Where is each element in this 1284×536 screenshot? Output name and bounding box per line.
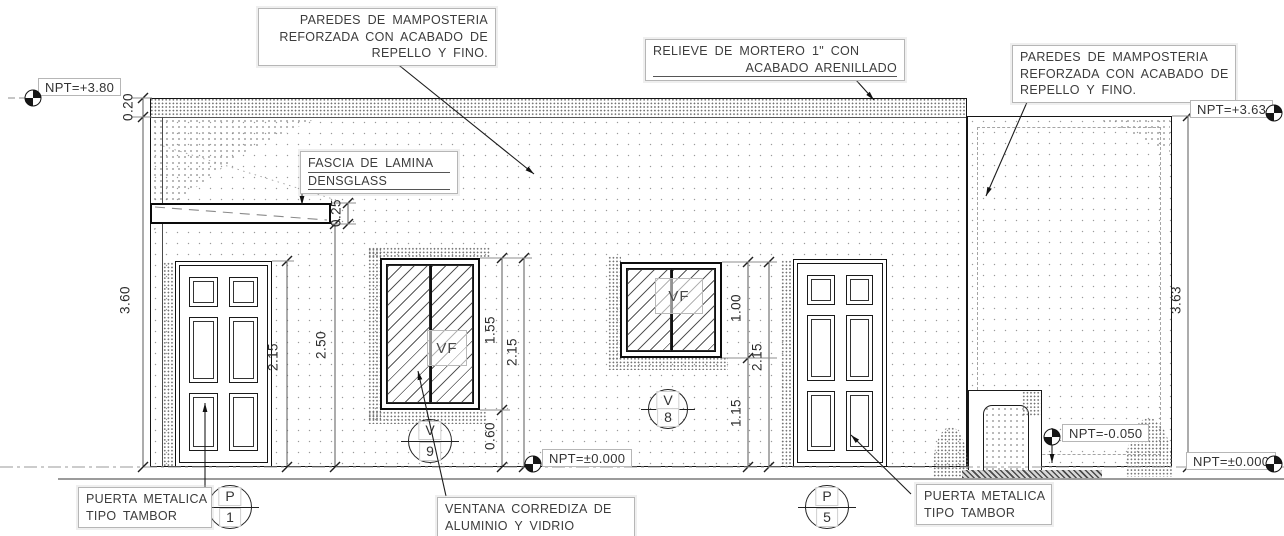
marker-p1: P 1 — [208, 485, 252, 529]
note-mortar: RELIEVE DE MORTERO 1" CON ACABADO ARENIL… — [645, 39, 905, 81]
level-npt-zero-center: NPT=±0.000 — [542, 449, 632, 467]
window-v8-vf-tag: VF — [655, 278, 703, 314]
level-symbol-icon — [525, 456, 542, 473]
marker-letter: P — [815, 487, 838, 506]
marker-v8: V 8 — [648, 389, 688, 429]
marker-letter: P — [218, 487, 241, 506]
note-line: PAREDES DE MAMPOSTERIA — [266, 12, 488, 29]
dim-window-v9-head: 2.15 — [505, 338, 520, 366]
door-panel — [229, 317, 258, 383]
note-masonry-right: PAREDES DE MAMPOSTERIA REFORZADA CON ACA… — [1012, 45, 1236, 103]
door-panel — [846, 391, 874, 451]
level-npt-zero-right: NPT=±0.000 — [1186, 452, 1276, 470]
note-line: FASCIA DE LAMINA — [308, 155, 450, 173]
note-line: REPELLO Y FINO. — [1020, 82, 1228, 99]
dim-parapet-band: 0.20 — [121, 93, 136, 121]
wall-inner-edge-line — [162, 117, 163, 467]
note-line: PUERTA METALICA — [924, 488, 1044, 505]
dim-right-wall-height: 3.63 — [1169, 286, 1184, 314]
dim-window-v9-height: 1.55 — [483, 316, 498, 344]
note-line: DENSGLASS — [308, 173, 450, 191]
niche-base-strip — [962, 470, 1102, 478]
note-masonry-left: PAREDES DE MAMPOSTERIA REFORZADA CON ACA… — [258, 8, 496, 66]
dim-canopy-to-floor: 2.50 — [314, 331, 329, 359]
note-window-sliding: VENTANA CORREDIZA DE ALUMINIO Y VIDRIO — [437, 497, 635, 536]
dim-window-v9-sill: 0.60 — [483, 422, 498, 450]
niche-corner-stipple — [1022, 391, 1041, 417]
note-line: TIPO TAMBOR — [924, 505, 1044, 522]
door-left — [175, 261, 272, 467]
note-line: RELIEVE DE MORTERO 1" CON — [653, 43, 897, 60]
door-panel — [807, 391, 835, 451]
door-panel — [229, 277, 258, 307]
marker-number: 8 — [657, 408, 679, 427]
window-v9-vf-tag: VF — [427, 330, 467, 366]
dim-left-door-height: 2.15 — [266, 343, 281, 371]
dim-window-v8-head: 2.15 — [750, 343, 765, 371]
dim-fascia-thickness: 0.25 — [329, 199, 344, 227]
note-fascia: FASCIA DE LAMINA DENSGLASS — [300, 151, 458, 194]
level-npt-380: NPT=+3.80 — [38, 78, 121, 96]
marker-number: 9 — [419, 442, 441, 461]
note-door-right: PUERTA METALICA TIPO TAMBOR — [916, 484, 1052, 525]
door-right — [793, 259, 887, 467]
level-symbol-icon — [25, 90, 42, 107]
window-pane — [387, 265, 430, 403]
level-npt-minus-050: NPT=-0.050 — [1062, 424, 1149, 442]
door-panel — [189, 393, 218, 451]
marker-p5: P 5 — [805, 485, 849, 529]
door-panel — [807, 315, 835, 381]
door-panel — [846, 275, 874, 305]
note-line: REPELLO Y FINO. — [266, 45, 488, 62]
canopy-slab — [150, 203, 331, 224]
door-panel — [846, 315, 874, 381]
note-line: PUERTA METALICA — [86, 491, 204, 508]
door-right-leaf — [797, 263, 883, 463]
level-symbol-icon — [1266, 456, 1283, 473]
door-panel — [807, 275, 835, 305]
note-line: REFORZADA CON ACABADO DE — [1020, 66, 1228, 83]
note-line: TIPO TAMBOR — [86, 508, 204, 525]
marker-number: 5 — [816, 508, 838, 527]
note-line: ALUMINIO Y VIDRIO — [445, 518, 627, 535]
door-panel — [189, 277, 218, 307]
level-symbol-icon — [1266, 105, 1283, 122]
elevation-drawing: VF VF — [0, 0, 1284, 536]
door-panel — [189, 317, 218, 383]
note-line: REFORZADA CON ACABADO DE — [266, 29, 488, 46]
dim-window-v8-height: 1.00 — [729, 294, 744, 322]
note-line: PAREDES DE MAMPOSTERIA — [1020, 49, 1228, 66]
note-door-left: PUERTA METALICA TIPO TAMBOR — [78, 487, 212, 528]
marker-v9: V 9 — [408, 419, 452, 463]
note-line: ACABADO ARENILLADO — [653, 60, 897, 78]
vf-label: VF — [436, 340, 457, 357]
level-symbol-icon — [1044, 429, 1061, 446]
level-npt-363: NPT=+3.63 — [1190, 100, 1273, 118]
vf-label: VF — [668, 288, 689, 305]
door-panel — [229, 393, 258, 451]
marker-number: 1 — [219, 508, 241, 527]
dim-window-v8-sill: 1.15 — [729, 399, 744, 427]
marker-letter: V — [418, 421, 441, 440]
note-line: VENTANA CORREDIZA DE — [445, 501, 627, 518]
dim-left-wall-height: 3.60 — [118, 286, 133, 314]
door-left-leaf — [179, 265, 268, 463]
